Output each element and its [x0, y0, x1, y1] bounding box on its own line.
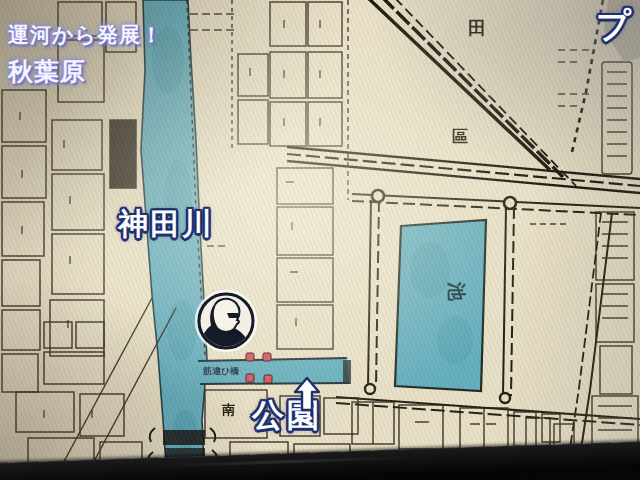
railway-horizontal-lines: [287, 147, 640, 193]
tv-screen-photo: 池: [0, 0, 640, 480]
program-caption-line2: 秋葉原: [8, 56, 86, 87]
river-label: 神田川: [118, 204, 214, 245]
district-glyph-top: 田: [468, 17, 486, 38]
portrait-icon: [194, 289, 258, 353]
bridge-name-glyph: 筋違ひ橋: [202, 366, 239, 376]
hatched-building: [110, 120, 136, 188]
pond-water: 池: [395, 220, 486, 391]
program-caption-line1: 運河から発展！: [8, 22, 163, 48]
ward-glyph: 區: [452, 127, 468, 146]
south-block-glyph: 南: [221, 402, 235, 417]
up-arrow-icon: [292, 376, 324, 414]
bezel-reflection: [155, 456, 415, 468]
park-perimeter-streets: [336, 190, 640, 476]
partial-caption-right: プ: [596, 4, 632, 47]
pond-glyph: 池: [446, 281, 468, 302]
